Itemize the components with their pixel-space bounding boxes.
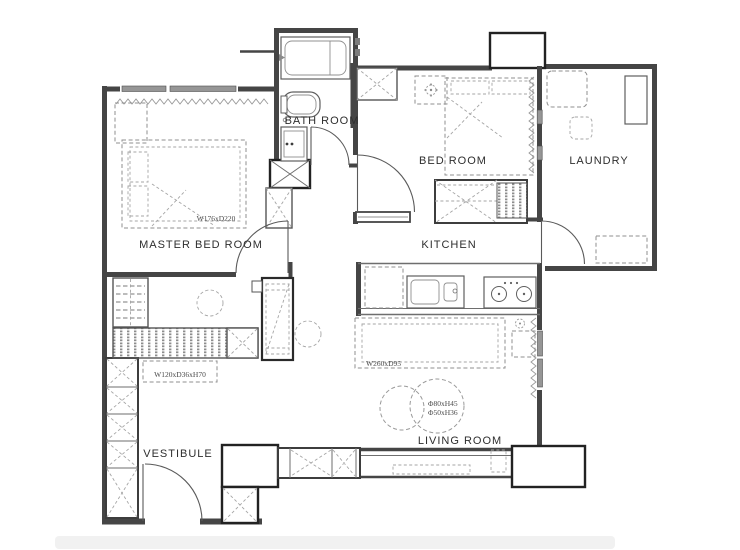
- fridge: [365, 267, 403, 308]
- curtain-zigzag-living: [531, 318, 536, 398]
- floor-plan-page: W176xD220: [0, 0, 740, 550]
- window-living-2: [538, 359, 543, 387]
- faucet-dot: [286, 143, 289, 146]
- laundry-small-box: [570, 117, 592, 139]
- pillow: [492, 81, 530, 94]
- water-heater: [625, 76, 647, 124]
- window-master-2: [170, 86, 236, 92]
- blanket-fold: [447, 97, 503, 138]
- coffee-table-dim-1: Φ80xH45: [428, 399, 458, 408]
- wall-mark: [355, 38, 360, 45]
- room-label-laundry: LAUNDRY: [569, 155, 628, 167]
- window-master-1: [122, 86, 166, 92]
- door-laundry-arc: [542, 221, 585, 264]
- bathroom-fixtures: [279, 37, 350, 161]
- wall-mark: [355, 49, 360, 56]
- room-label-vestibule: VESTIBULE: [143, 448, 213, 460]
- balcony-box: [491, 450, 506, 472]
- column-top: [490, 33, 545, 68]
- room-label-bathroom: BATH ROOM: [285, 115, 360, 127]
- washer: [596, 236, 647, 263]
- room-label-bedroom: BED ROOM: [419, 155, 487, 167]
- master-bed-dim: W176xD220: [197, 214, 236, 223]
- shelf-dotted: [497, 183, 527, 218]
- toilet-tank: [281, 96, 287, 113]
- faucet-dot: [291, 143, 294, 146]
- column-entry: [222, 445, 278, 487]
- cabinet-notch: [252, 281, 262, 292]
- bathtub: [281, 37, 350, 79]
- room-label-kitchen: KITCHEN: [421, 239, 476, 251]
- room-label-master-bedroom: MASTER BED ROOM: [139, 239, 263, 251]
- kitchen-fixtures: [358, 264, 540, 315]
- kitchen-sink-unit: [407, 276, 464, 308]
- bathroom-sink: [281, 127, 307, 161]
- laundry-fixtures: [547, 71, 647, 263]
- curtain-box: [115, 103, 147, 143]
- page-shadow: [55, 536, 615, 549]
- vestibule-cabinet-dim: W120xD36xH70: [154, 370, 206, 379]
- window-living-1: [538, 331, 543, 356]
- room-label-living-room: LIVING ROOM: [418, 435, 502, 447]
- toilet: [283, 92, 320, 117]
- pillow: [128, 152, 148, 182]
- room-labels: MASTER BED ROOM BATH ROOM BED ROOM LAUND…: [139, 115, 629, 460]
- sofa-dim: W260xD95: [366, 359, 401, 368]
- window-bedroom-1: [537, 110, 542, 124]
- laundry-basket: [547, 71, 587, 107]
- coffee-table-large: [380, 386, 424, 430]
- sofa-inner: [362, 324, 498, 362]
- coffee-table-dim-2: Φ50xH36: [428, 408, 458, 417]
- door-entry-arc: [145, 464, 202, 521]
- stool-dressing: [197, 290, 223, 316]
- stool-hall: [295, 321, 321, 347]
- column-bottom-right: [512, 446, 585, 487]
- pillow: [451, 81, 489, 94]
- door-bedroom-arc: [358, 155, 415, 212]
- tv-cabinet: [393, 465, 470, 474]
- door-bath-arc: [311, 127, 349, 165]
- master-bedroom-furniture: W176xD220: [115, 103, 246, 228]
- master-bed-inner: [130, 147, 240, 221]
- pillow: [128, 186, 148, 216]
- floor-plan-drawing: W176xD220: [0, 0, 740, 550]
- window-bedroom-2: [537, 146, 542, 160]
